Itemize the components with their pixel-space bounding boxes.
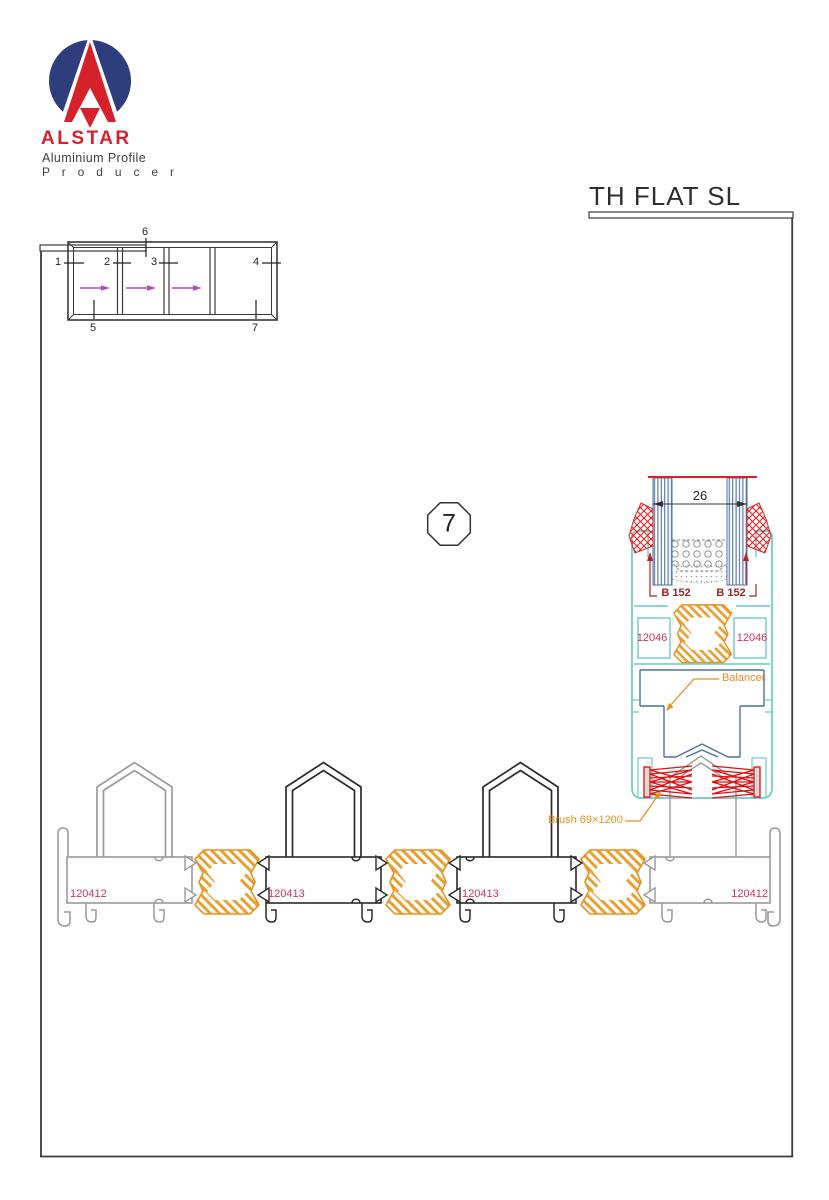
technical-drawing-canvas [0, 0, 829, 1200]
schematic-label-3: 3 [151, 257, 157, 268]
schematic-label-1: 1 [55, 257, 61, 268]
brush-leader [625, 791, 661, 821]
slide-direction-arrows [80, 285, 202, 291]
schematic-label-7: 7 [252, 323, 258, 334]
gasket-label-left: B 152 [661, 588, 690, 599]
balancer-label: Balancer [722, 673, 765, 684]
sash-outline-gray [97, 763, 172, 858]
detail-callout-number: 7 [442, 512, 456, 537]
profile-label-120412-right: 120412 [731, 889, 768, 900]
detail-sash-section [625, 477, 772, 857]
sealant-block [672, 540, 727, 583]
sheet-title: TH FLAT SL [589, 183, 741, 209]
profile-label-120413-right: 120413 [462, 889, 499, 900]
drawing-sheet: ALSTAR Aluminium Profile P r o d u c e r… [0, 0, 829, 1200]
schematic-label-2: 2 [104, 257, 110, 268]
schematic-label-4: 4 [253, 257, 259, 268]
balancer-leader [666, 679, 719, 711]
brand-tagline-producer: P r o d u c e r [42, 166, 178, 178]
clip-label-left: 12046 [637, 633, 668, 644]
dimension-26: 26 [693, 489, 707, 502]
clip-label-right: 12046 [737, 633, 768, 644]
gasket-label-right: B 152 [716, 588, 745, 599]
brush-seals [644, 766, 760, 798]
sash-outline-black-2 [483, 763, 558, 858]
profile-label-120413-left: 120413 [268, 889, 305, 900]
schematic-label-6: 6 [142, 227, 148, 238]
profile-label-120412-left: 120412 [70, 889, 107, 900]
alstar-logo-mark [49, 33, 131, 129]
brush-label: Brush 69×1200 [548, 815, 623, 826]
brand-tagline: Aluminium Profile [42, 152, 146, 165]
interlock-clip-detail [674, 605, 732, 663]
sheet-frame [40, 212, 793, 1157]
schematic-label-5: 5 [90, 323, 96, 334]
brand-name: ALSTAR [41, 129, 132, 148]
sash-outline-black-1 [286, 763, 361, 858]
